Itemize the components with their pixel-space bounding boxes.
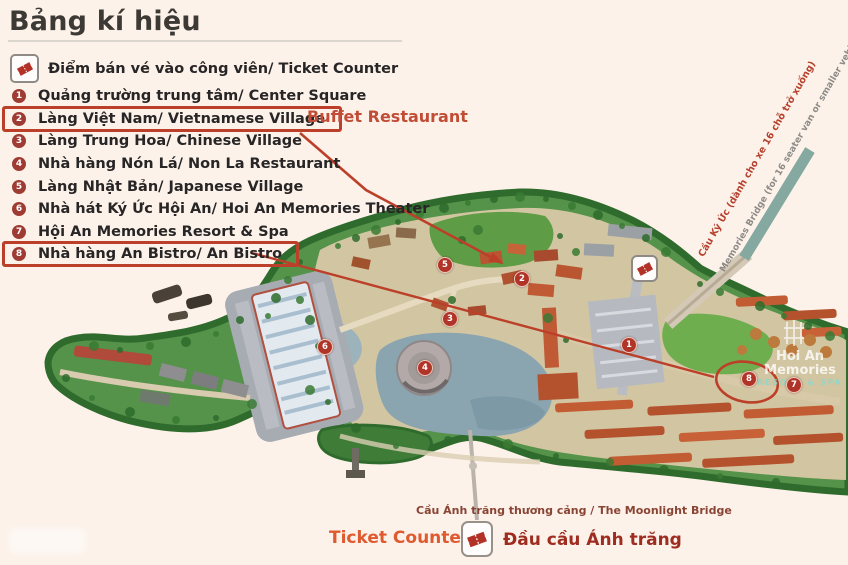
legend-item-label: Nhà hàng Nón Lá/ Non La Restaurant: [38, 156, 340, 172]
ticket-counter-legend: Điểm bán vé vào công viên/ Ticket Counte…: [10, 54, 398, 83]
legend-item-number: 7: [12, 225, 26, 239]
photo-watermark: [8, 528, 86, 554]
legend-item: 8 Nhà hàng An Bistro/ An Bistro: [2, 243, 446, 266]
map-marker-2: 2: [514, 271, 530, 287]
map-marker-3: 3: [442, 311, 458, 327]
ticket-icon: [461, 521, 493, 557]
ticket-counter-label: Ticket Counter: [329, 528, 469, 548]
moonlight-bridge-head-label: Đầu cầu Ánh trăng: [503, 530, 682, 550]
map-ticket-counter-icon: [631, 255, 658, 282]
ticket-icon: [10, 54, 39, 83]
legend-item: 3 Làng Trung Hoa/ Chinese Village: [2, 130, 446, 153]
map-marker-7: 7: [786, 377, 802, 393]
legend-item-number: 1: [12, 89, 26, 103]
resort-logo-watermark: [779, 318, 809, 348]
ticket-counter-legend-label: Điểm bán vé vào công viên/ Ticket Counte…: [48, 61, 398, 77]
legend-item-label: Làng Nhật Bản/ Japanese Village: [38, 179, 303, 195]
legend-item-number: 5: [12, 180, 26, 194]
moonlight-bridge-label: Cầu Ánh trăng thương cảng / The Moonligh…: [416, 504, 732, 517]
legend-item: 1 Quảng trường trung tâm/ Center Square: [2, 85, 446, 108]
title-divider: [8, 40, 402, 42]
legend-item: 5 Làng Nhật Bản/ Japanese Village: [2, 175, 446, 198]
map-marker-4: 4: [417, 360, 433, 376]
legend-item-number: 6: [12, 202, 26, 216]
legend-item: 4 Nhà hàng Nón Lá/ Non La Restaurant: [2, 153, 446, 176]
resort-name: Hoi An Memories: [752, 350, 848, 379]
page-title: Bảng kí hiệu: [9, 6, 201, 37]
legend-item-label: Nhà hàng An Bistro/ An Bistro: [38, 246, 282, 262]
legend-item: 7 Hội An Memories Resort & Spa: [2, 221, 446, 244]
legend-item-number: 8: [12, 247, 26, 261]
legend-item-number: 3: [12, 134, 26, 148]
legend-item-label: Quảng trường trung tâm/ Center Square: [38, 88, 366, 104]
park-map-infographic: Hoi An Memories RESORT & SPA Bảng kí hiệ…: [0, 0, 848, 565]
map-marker-6: 6: [317, 339, 333, 355]
legend-item-label: Làng Trung Hoa/ Chinese Village: [38, 133, 302, 149]
boats: [151, 284, 213, 322]
legend-item-number: 2: [12, 112, 26, 126]
legend-item-label: Hội An Memories Resort & Spa: [38, 224, 289, 240]
legend-item-label: Làng Việt Nam/ Vietnamese Village: [38, 111, 325, 127]
map-marker-5: 5: [437, 257, 453, 273]
map-marker-8: 8: [741, 371, 757, 387]
legend-item: 6 Nhà hát Ký Ức Hội An/ Hoi An Memories …: [2, 198, 446, 221]
legend-item-number: 4: [12, 157, 26, 171]
map-marker-1: 1: [621, 337, 637, 353]
legend-item-label: Nhà hát Ký Ức Hội An/ Hoi An Memories Th…: [38, 201, 429, 217]
buffet-restaurant-label: Buffet Restaurant: [307, 107, 468, 126]
